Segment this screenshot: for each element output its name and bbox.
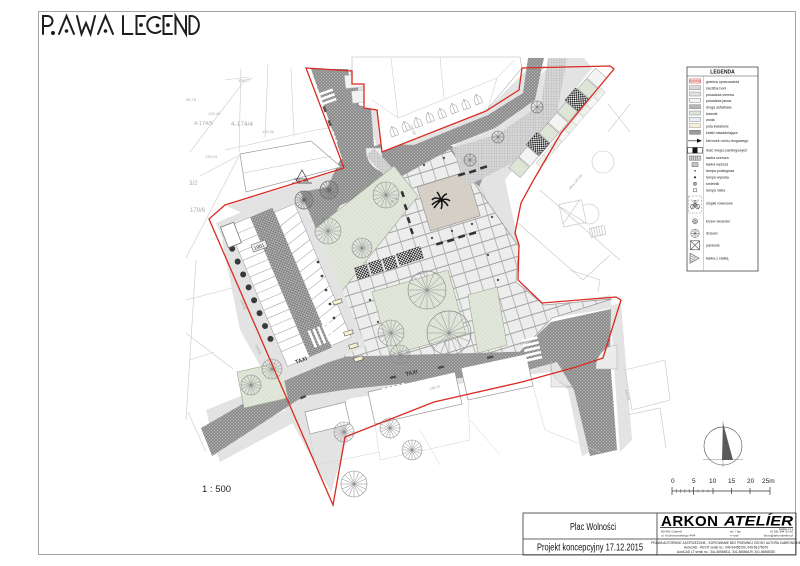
svg-text:biuro@arkonatelier.pl: biuro@arkonatelier.pl (764, 534, 794, 538)
svg-text:4-174/4: 4-174/4 (231, 121, 253, 128)
svg-text:śmietnik: śmietnik (706, 182, 719, 186)
svg-text:posadzka ciemna: posadzka ciemna (706, 93, 734, 97)
svg-text:pola kwiatowe: pola kwiatowe (706, 125, 729, 129)
svg-text:Projekt koncepcyjny 17.12.2015: Projekt koncepcyjny 17.12.2015 (537, 543, 643, 554)
svg-text:woda: woda (706, 118, 715, 122)
svg-text:ATELÍER: ATELÍER (723, 513, 794, 529)
svg-text:ul. Kochanowskiego 44/4: ul. Kochanowskiego 44/4 (661, 534, 696, 538)
svg-text:5: 5 (692, 478, 696, 485)
svg-text:38,78: 38,78 (186, 97, 197, 102)
svg-text:stojaki rowerowe: stojaki rowerowe (706, 202, 733, 206)
svg-text:parasole: parasole (706, 244, 720, 248)
svg-text:drzewo: drzewo (706, 232, 718, 236)
svg-text:4-174/5: 4-174/5 (194, 121, 213, 127)
svg-text:ławka z siatką: ławka z siatką (706, 257, 728, 261)
svg-text:kierunek ruchu drogowego: kierunek ruchu drogowego (706, 139, 748, 143)
svg-text:Plac Wolności: Plac Wolności (570, 522, 616, 533)
svg-text:139,40: 139,40 (208, 111, 221, 116)
svg-text:LEGENDA: LEGENDA (710, 70, 735, 76)
svg-text:139,04: 139,04 (205, 154, 218, 159)
svg-text:kratki nawadniające: kratki nawadniające (706, 131, 738, 135)
svg-text:ilość miejsc parkingowych: ilość miejsc parkingowych (706, 149, 747, 153)
svg-text:139,17: 139,17 (238, 78, 251, 83)
svg-text:139,06: 139,06 (262, 129, 275, 134)
svg-text:droga asfaltowa: droga asfaltowa (706, 106, 731, 110)
svg-text:e-mail: e-mail (730, 534, 739, 538)
svg-text:PRAWA AUTORSKIE ZASTRZEŻONE -: PRAWA AUTORSKIE ZASTRZEŻONE - KOPIOWANIE… (651, 540, 800, 545)
svg-text:trawnik: trawnik (706, 112, 718, 116)
svg-text:0: 0 (671, 478, 675, 485)
svg-text:20: 20 (747, 478, 755, 485)
svg-text:AutoCAD LT serial no.: 341-565: AutoCAD LT serial no.: 341-56566511, 341… (677, 550, 775, 554)
svg-text:siedźba honi: siedźba honi (706, 87, 726, 91)
svg-text:lampa niska: lampa niska (706, 189, 725, 193)
svg-text:lampa podłogowa: lampa podłogowa (706, 169, 734, 173)
svg-text:1 : 500: 1 : 500 (202, 484, 231, 495)
svg-text:posadzka jasna: posadzka jasna (706, 99, 731, 103)
svg-text:krzew oleander: krzew oleander (706, 220, 731, 224)
svg-text:ławka szersza: ławka szersza (706, 156, 729, 160)
svg-text:25m: 25m (762, 478, 775, 485)
svg-text:ławka węższa: ławka węższa (706, 163, 728, 167)
svg-text:granica opracowania: granica opracowania (706, 80, 739, 84)
svg-text:AutoCAD - REVIT serial no.: 04: AutoCAD - REVIT serial no.: 049-54455290… (684, 546, 768, 550)
svg-text:179/6: 179/6 (190, 208, 206, 214)
svg-text:10: 10 (709, 478, 717, 485)
svg-text:3/2: 3/2 (189, 181, 198, 187)
svg-text:lampa wysoka: lampa wysoka (706, 176, 729, 180)
svg-text:15: 15 (728, 478, 736, 485)
